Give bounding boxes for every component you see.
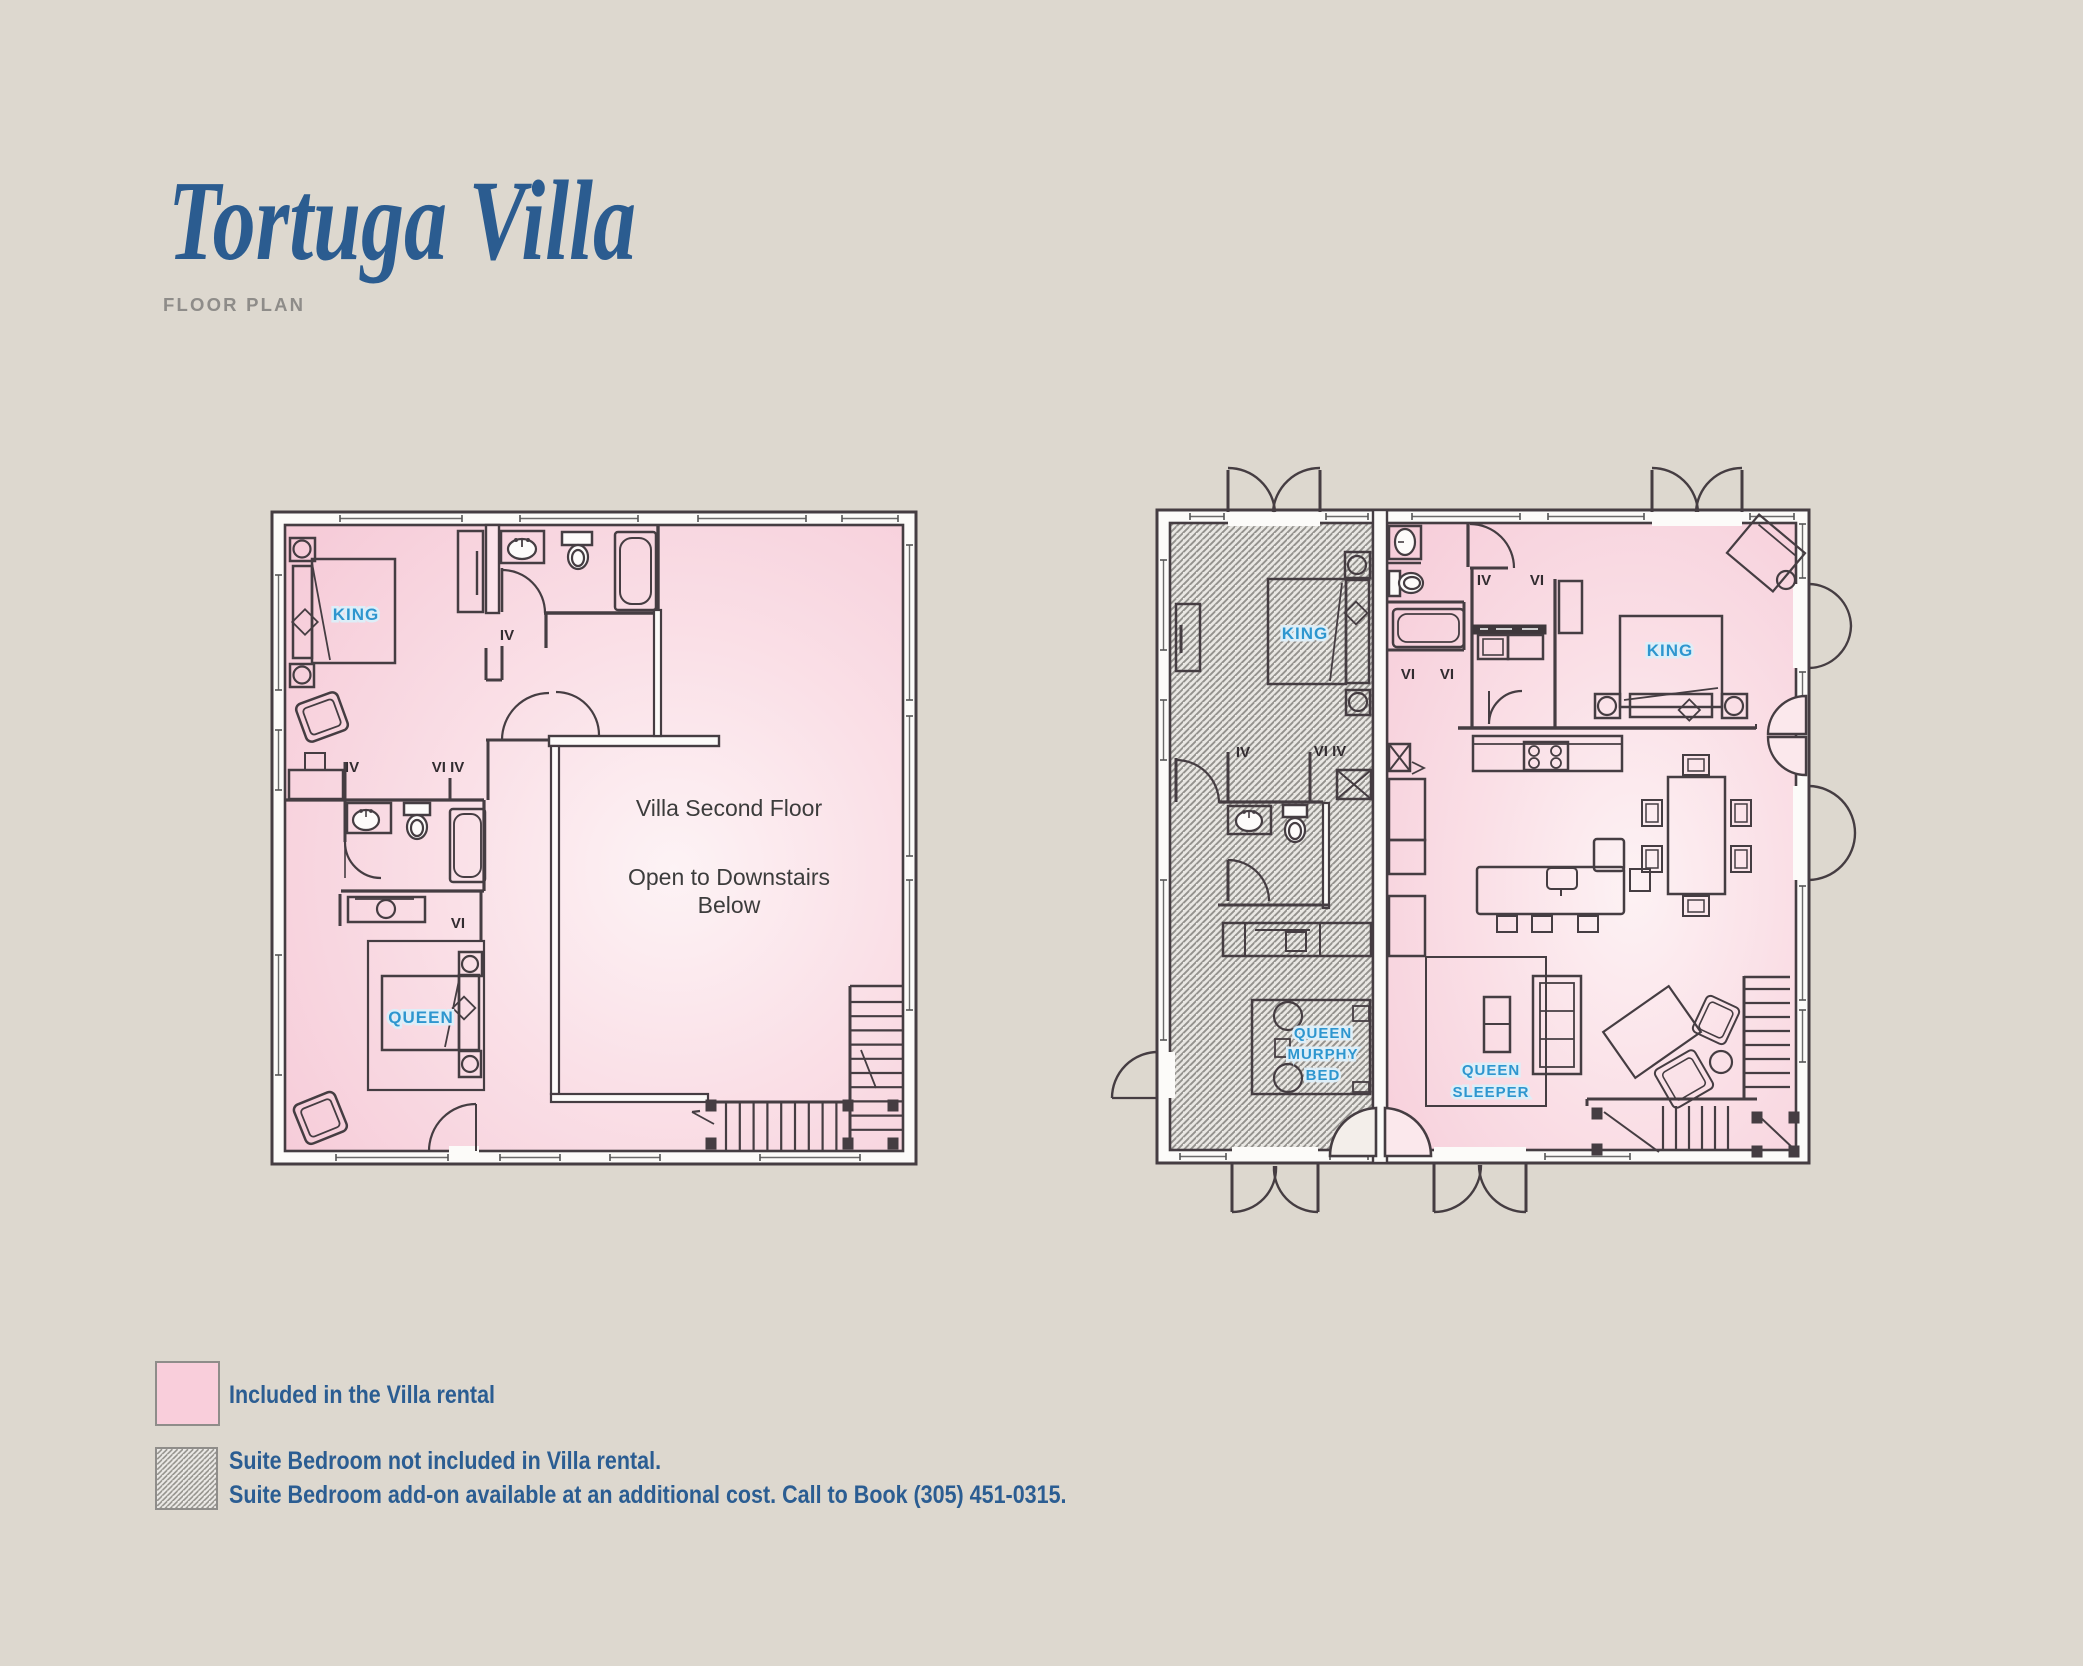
svg-text:IV: IV bbox=[1477, 572, 1491, 589]
svg-text:IV: IV bbox=[1236, 744, 1250, 761]
svg-text:KING: KING bbox=[1647, 641, 1694, 660]
svg-text:VI IV: VI IV bbox=[432, 759, 465, 776]
svg-text:Villa Second Floor: Villa Second Floor bbox=[636, 795, 823, 821]
svg-text:SLEEPER: SLEEPER bbox=[1452, 1084, 1529, 1101]
svg-text:Open to Downstairs: Open to Downstairs bbox=[628, 864, 830, 890]
svg-text:VI: VI bbox=[1440, 666, 1454, 683]
svg-text:VI IV: VI IV bbox=[1314, 743, 1347, 760]
svg-text:IV: IV bbox=[345, 759, 359, 776]
svg-text:VI: VI bbox=[451, 915, 465, 932]
svg-text:BED: BED bbox=[1306, 1067, 1341, 1084]
svg-text:IV: IV bbox=[500, 627, 514, 644]
svg-text:QUEEN: QUEEN bbox=[388, 1008, 453, 1027]
svg-text:KING: KING bbox=[1282, 624, 1329, 643]
svg-text:QUEEN: QUEEN bbox=[1462, 1062, 1520, 1079]
svg-text:Below: Below bbox=[698, 892, 761, 918]
svg-text:VI: VI bbox=[1401, 666, 1415, 683]
svg-text:MURPHY: MURPHY bbox=[1287, 1046, 1358, 1063]
svg-text:VI: VI bbox=[1530, 572, 1544, 589]
svg-text:KING: KING bbox=[333, 605, 380, 624]
svg-text:QUEEN: QUEEN bbox=[1294, 1025, 1352, 1042]
